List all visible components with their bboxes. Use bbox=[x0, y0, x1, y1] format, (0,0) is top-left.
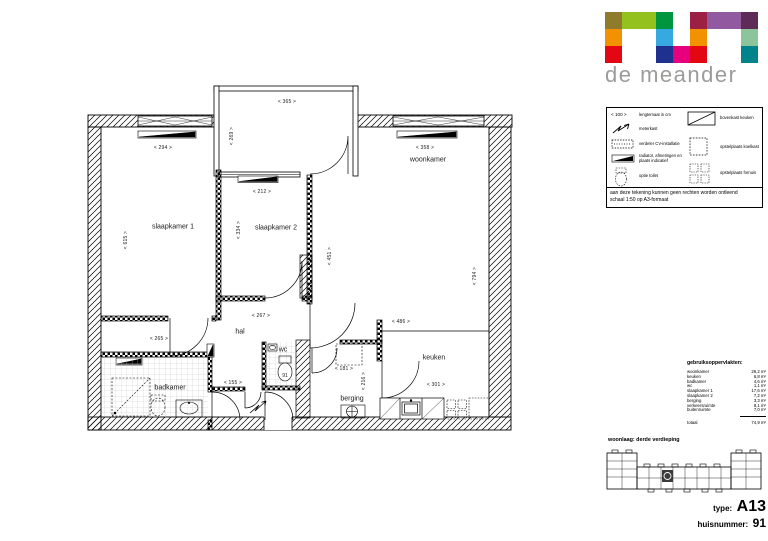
legend-label-verdeler: verdeler CV-installatie bbox=[639, 142, 680, 147]
legend-label-fornuis: opstelplaats fornuis bbox=[720, 171, 756, 176]
optie-toilet-icon bbox=[613, 167, 629, 187]
dim-155: < 155 > bbox=[224, 380, 242, 386]
dim-301: < 301 > bbox=[427, 382, 445, 388]
legend-label-koelkast: opstelplaats koelkast bbox=[720, 145, 759, 150]
logo-cell bbox=[622, 29, 639, 46]
total-divider bbox=[740, 416, 766, 417]
logo-cell bbox=[724, 12, 741, 29]
room-label-hal: hal bbox=[235, 329, 244, 336]
legend-dim-symbol: < 100 > bbox=[611, 112, 627, 117]
logo-cell bbox=[741, 46, 758, 63]
logo-cell bbox=[690, 12, 707, 29]
huisnummer-value: 91 bbox=[753, 516, 766, 530]
dim-794: < 794 > bbox=[472, 267, 478, 285]
legend-label-lengtemaat: lengtemaat in cm bbox=[639, 113, 671, 118]
logo-cell bbox=[741, 12, 758, 29]
huisnummer-line: huisnummer: 91 bbox=[698, 514, 766, 532]
room-label-wc: wc bbox=[279, 347, 288, 354]
door-number-label: 91 bbox=[282, 373, 288, 379]
logo-cell bbox=[724, 46, 741, 63]
logo-cell bbox=[622, 46, 639, 63]
dim-265: < 265 > bbox=[150, 336, 168, 342]
logo-cell bbox=[605, 29, 622, 46]
area-table-title: gebruiksoppervlakten: bbox=[687, 360, 766, 366]
logo-cell bbox=[622, 12, 639, 29]
meander-logo bbox=[605, 12, 758, 63]
dim-121: < 121 > bbox=[262, 357, 268, 375]
huisnummer-label: huisnummer: bbox=[698, 520, 749, 529]
dim-358: < 358 > bbox=[416, 145, 434, 151]
room-label-badkamer: badkamer bbox=[154, 385, 185, 392]
room-label-slaapkamer1: slaapkamer 1 bbox=[152, 224, 194, 231]
meterkast-arrow-icon bbox=[250, 401, 266, 413]
logo-cell bbox=[724, 29, 741, 46]
logo-cell bbox=[656, 29, 673, 46]
dim-486: < 486 > bbox=[392, 319, 410, 325]
room-label-woonkamer: woonkamer bbox=[410, 157, 446, 164]
dim-615: < 615 > bbox=[123, 231, 129, 249]
radiator-legend-icon bbox=[611, 154, 635, 163]
floor-plan-drawing bbox=[0, 0, 600, 541]
type-label: type: bbox=[713, 504, 732, 513]
cv-verdeler-icon bbox=[611, 139, 635, 149]
logo-cell bbox=[741, 29, 758, 46]
room-label-keuken: keuken bbox=[423, 355, 446, 362]
logo-cell bbox=[639, 12, 656, 29]
logo-cell bbox=[639, 29, 656, 46]
building-overview bbox=[604, 447, 764, 493]
logo-cell bbox=[656, 12, 673, 29]
dim-181: < 181 > bbox=[335, 366, 353, 372]
type-value: A13 bbox=[737, 498, 766, 515]
kitchen-fixtures bbox=[380, 398, 489, 419]
logo-cell bbox=[707, 12, 724, 29]
legend-label-meterkast: meterkast bbox=[639, 127, 657, 132]
logo-cell bbox=[673, 12, 690, 29]
legend-label-optie-toilet: optie toilet bbox=[639, 174, 658, 179]
room-label-slaapkamer2: slaapkamer 2 bbox=[255, 225, 297, 232]
bovenkast-icon bbox=[687, 111, 717, 126]
floor-level-label: woonlaag: derde verdieping bbox=[608, 437, 680, 443]
logo-cell bbox=[707, 29, 724, 46]
dim-451: < 451 > bbox=[327, 247, 333, 265]
dim-212: < 212 > bbox=[253, 189, 271, 195]
logo-cell bbox=[639, 46, 656, 63]
dim-269: < 269 > bbox=[229, 127, 235, 145]
logo-cell bbox=[707, 46, 724, 63]
disclaimer-line2: schaal 1:50 op A3-formaat bbox=[610, 197, 759, 204]
dim-334: < 334 > bbox=[236, 221, 242, 239]
dim-294: < 294 > bbox=[154, 145, 172, 151]
logo-cell bbox=[673, 46, 690, 63]
dim-365: < 365 > bbox=[278, 99, 296, 105]
logo-cell bbox=[605, 12, 622, 29]
dim-216: < 216 > bbox=[361, 372, 367, 390]
area-total-row: totaal74,9 m² bbox=[687, 421, 766, 426]
disclaimer-line1: aan deze tekening kunnen geen rechten wo… bbox=[610, 190, 759, 197]
area-table: gebruiksoppervlakten: woonkamer26,2 m² k… bbox=[687, 360, 766, 426]
radiators bbox=[116, 131, 457, 365]
koelkast-icon bbox=[689, 137, 709, 157]
room-label-berging: berging bbox=[340, 396, 363, 403]
logo-cell bbox=[605, 46, 622, 63]
meterkast-icon bbox=[611, 123, 633, 135]
logo-cell bbox=[656, 46, 673, 63]
fornuis-icon bbox=[689, 163, 711, 185]
logo-cell bbox=[673, 29, 690, 46]
type-block: type: A13 huisnummer: 91 bbox=[698, 498, 766, 532]
area-row: buitenruimte7,0 m² bbox=[687, 408, 766, 413]
logo-cell bbox=[690, 29, 707, 46]
legend-label-radiator: radiator, afmetingen en plaats indicatie… bbox=[639, 154, 685, 164]
legend-box: < 100 > lengtemaat in cm meterkast verde… bbox=[606, 107, 763, 188]
logo-cell bbox=[690, 46, 707, 63]
plan-sheet: slaapkamer 1 slaapkamer 2 woonkamer hal … bbox=[0, 0, 768, 541]
legend-label-bovenkast: bovenkast keuken bbox=[720, 116, 754, 121]
disclaimer-box: aan deze tekening kunnen geen rechten wo… bbox=[606, 188, 763, 208]
logo-wordmark: de meander bbox=[605, 62, 763, 88]
dim-267: < 267 > bbox=[252, 313, 270, 319]
